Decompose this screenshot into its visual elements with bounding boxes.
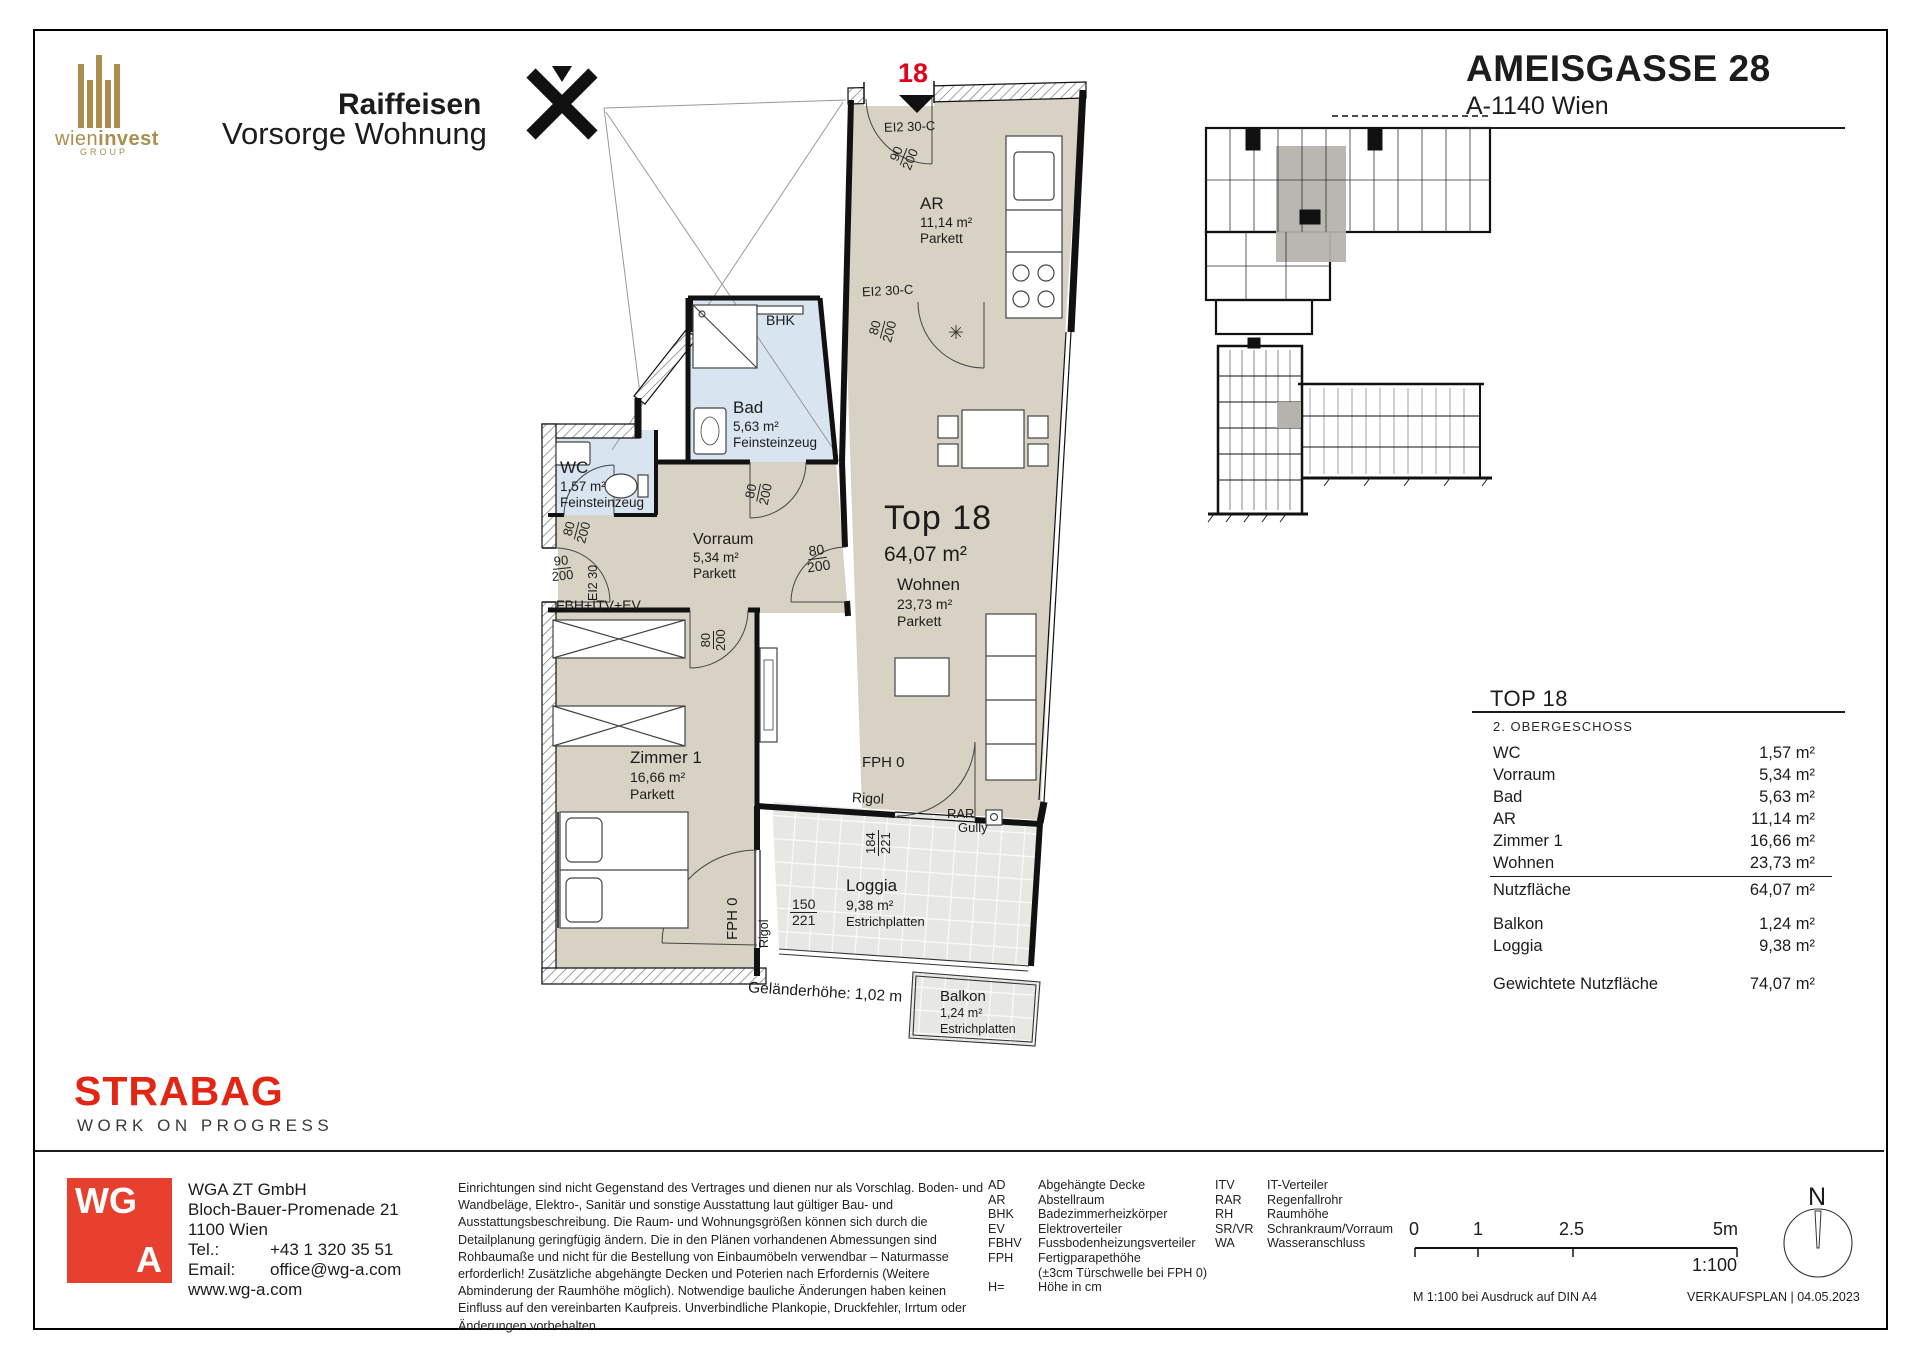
- rar-label: RAR: [947, 806, 974, 821]
- strabag-tagline: WORK ON PROGRESS: [77, 1116, 333, 1136]
- project-subtitle: A-1140 Wien: [1466, 92, 1609, 121]
- architect-address: Bloch-Bauer-Promenade 21: [188, 1200, 401, 1220]
- fph0-label-wohnen: FPH 0: [862, 754, 905, 771]
- summary-extra-row: Loggia9,38 m²: [1493, 937, 1815, 956]
- summary-row: Wohnen23,73 m²: [1493, 854, 1815, 873]
- room-label-loggia: Loggia 9,38 m² Estrichplatten: [846, 876, 925, 930]
- north-label: N: [1808, 1183, 1826, 1212]
- architect-website: www.wg-a.com: [188, 1280, 401, 1300]
- summary-extra-row: Balkon1,24 m²: [1493, 915, 1815, 934]
- scale-tick-0: 0: [1409, 1219, 1419, 1240]
- summary-row: AR11,14 m²: [1493, 810, 1815, 829]
- plan-type-date: VERKAUFSPLAN | 04.05.2023: [1687, 1290, 1860, 1304]
- architect-contact: WGA ZT GmbH Bloch-Bauer-Promenade 21 110…: [188, 1180, 401, 1300]
- project-title: AMEISGASSE 28: [1466, 48, 1771, 90]
- architect-city: 1100 Wien: [188, 1220, 401, 1240]
- scale-tick-2-5: 2.5: [1559, 1219, 1584, 1240]
- building-section: [1208, 338, 1492, 522]
- wieninvest-logo-icon: [78, 55, 120, 128]
- summary-rule-top: [1472, 711, 1845, 713]
- room-label-bad: Bad 5,63 m² Feinsteinzeug: [733, 398, 817, 452]
- architect-company: WGA ZT GmbH: [188, 1180, 401, 1200]
- loggia-door-dim: 184221: [864, 830, 894, 856]
- top18-label: Top 18 64,07 m² Wohnen 23,73 m² Parkett: [884, 498, 992, 630]
- scale-tick-1: 1: [1473, 1219, 1483, 1240]
- architect-email: office@wg-a.com: [270, 1260, 401, 1280]
- raiffeisen-gable-cross-icon: [531, 66, 593, 135]
- sink-symbol-icon: ✳: [948, 322, 964, 345]
- verkaufsplan-sheet: wieninvest GROUP Raiffeisen Vorsorge Woh…: [0, 0, 1920, 1357]
- side-entry-door-spec: EI2 30: [586, 565, 600, 601]
- room-label-balkon: Balkon 1,24 m² Estrichplatten: [940, 988, 1016, 1037]
- fph0-label-zimmer: FPH 0: [724, 897, 741, 940]
- legend-column-1: ADAbgehängte Decke ARAbstellraum BHKBade…: [988, 1178, 1207, 1295]
- rigol-label-loggia: Rigol: [852, 789, 885, 807]
- summary-row: Vorraum5,34 m²: [1493, 766, 1815, 785]
- entry-door-spec: EI2 30-C: [884, 118, 936, 135]
- raiffeisen-subline: Vorsorge Wohnung: [222, 116, 487, 152]
- scale-ratio: 1:100: [1692, 1255, 1737, 1276]
- fbh-itv-ev-label: FBH+ITV+EV: [556, 597, 641, 613]
- side-entry-door-dim: 90200: [550, 553, 575, 585]
- zimmer-loggia-door-dim: 150221: [790, 897, 817, 929]
- room-label-ar: AR 11,14 m² Parkett: [920, 194, 972, 248]
- ar-door-spec: EI2 30-C: [862, 282, 914, 300]
- wieninvest-group-label: GROUP: [80, 147, 128, 157]
- unit-number-marker: 18: [898, 58, 928, 89]
- summary-floor: 2. OBERGESCHOSS: [1493, 719, 1633, 734]
- scale-tick-5m: 5m: [1713, 1219, 1738, 1240]
- title-rule: [1466, 127, 1845, 129]
- summary-row: Bad5,63 m²: [1493, 788, 1815, 807]
- mini-overview-plan: [1206, 116, 1492, 334]
- vorraum-wohnen-door-dim: 80200: [804, 542, 832, 577]
- room-label-wc: WC 1,57 m² Feinsteinzeug: [560, 458, 644, 512]
- scale-bar: [1415, 1248, 1737, 1257]
- gully-label: Gully: [958, 820, 988, 835]
- summary-row: Zimmer 116,66 m²: [1493, 832, 1815, 851]
- architect-phone: +43 1 320 35 51: [270, 1240, 393, 1260]
- legend-column-2: ITVIT-Verteiler RARRegenfallrohr RHRaumh…: [1215, 1178, 1393, 1251]
- wga-logo: WG A: [67, 1178, 172, 1283]
- room-label-wohnen: Wohnen 23,73 m² Parkett: [897, 575, 992, 630]
- summary-total-row: Gewichtete Nutzfläche74,07 m²: [1493, 975, 1815, 994]
- zimmer-door-dim: 80200: [699, 629, 729, 651]
- rigol-label-zimmer: Rigol: [757, 920, 771, 949]
- bhk-label: BHK: [766, 312, 795, 328]
- strabag-logo: STRABAG: [74, 1068, 284, 1115]
- print-scale-note: M 1:100 bei Ausdruck auf DIN A4: [1413, 1290, 1597, 1304]
- disclaimer-text: Einrichtungen sind nicht Gegenstand des …: [458, 1180, 986, 1335]
- footer-separator: [35, 1150, 1884, 1152]
- summary-subtotal-row: Nutzfläche64,07 m²: [1493, 881, 1815, 900]
- summary-rule-subtotal: [1490, 876, 1832, 877]
- room-label-zimmer1: Zimmer 1 16,66 m² Parkett: [630, 748, 702, 803]
- summary-title: TOP 18: [1490, 686, 1568, 712]
- room-label-vorraum: Vorraum 5,34 m² Parkett: [693, 530, 753, 582]
- compass-icon: [1784, 1209, 1852, 1277]
- summary-row: WC1,57 m²: [1493, 744, 1815, 763]
